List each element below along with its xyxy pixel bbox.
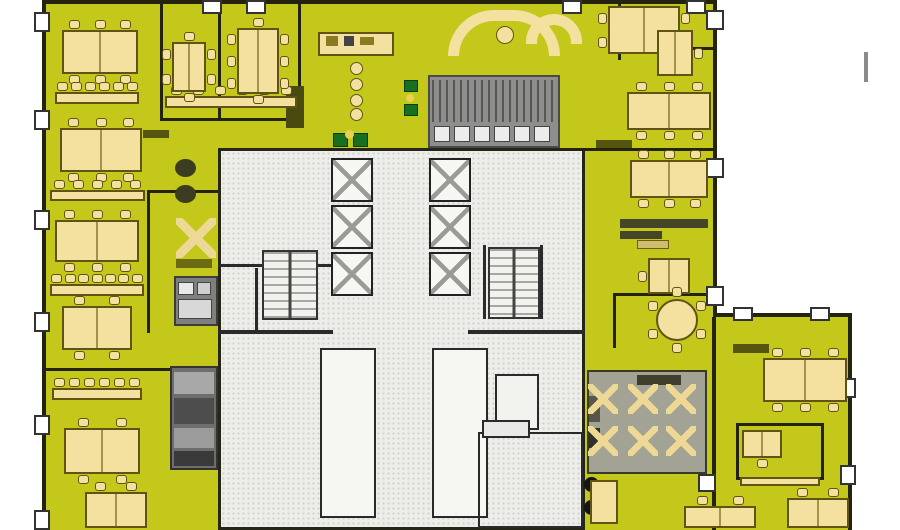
chair <box>697 496 708 505</box>
column <box>698 474 716 492</box>
x-chair-mark <box>176 218 216 258</box>
restroom-fixture <box>494 126 510 142</box>
elevator-shaft <box>331 158 373 202</box>
chair <box>757 459 768 468</box>
chair <box>78 418 89 427</box>
chair <box>113 82 124 91</box>
chair <box>598 13 607 24</box>
chair <box>638 199 649 208</box>
chair <box>96 118 107 127</box>
desk-cluster <box>55 220 139 262</box>
desk-cluster <box>62 30 138 74</box>
desk-cluster <box>172 42 206 92</box>
stairwell <box>262 250 318 320</box>
chair <box>772 403 783 412</box>
kitchen-fixture <box>178 299 212 319</box>
chair <box>74 351 85 360</box>
service-fixture <box>174 451 214 466</box>
chair <box>215 86 226 95</box>
desk-cluster <box>60 128 142 172</box>
chair <box>111 180 122 189</box>
desk-surface <box>55 220 139 262</box>
desk-surface <box>630 160 708 198</box>
chair <box>54 378 65 387</box>
chair <box>118 274 129 283</box>
chair <box>109 351 120 360</box>
desk-surface <box>763 358 847 402</box>
desk-surface <box>172 42 206 92</box>
chair <box>105 274 116 283</box>
chair <box>690 199 701 208</box>
armchair <box>175 185 196 203</box>
chair <box>280 56 289 67</box>
desk-surface <box>787 498 849 528</box>
counter-item <box>326 36 338 46</box>
desk-cluster <box>763 358 847 402</box>
restroom-partitions <box>432 80 556 122</box>
floor-plan <box>0 0 900 530</box>
chair <box>116 418 127 427</box>
desk-surface <box>627 92 711 130</box>
column <box>562 0 582 14</box>
desk-cluster <box>237 28 279 94</box>
column <box>34 415 50 435</box>
chair <box>84 378 95 387</box>
chair <box>253 18 264 27</box>
chair <box>207 49 216 60</box>
chair <box>598 37 607 48</box>
desk-rail <box>740 477 820 486</box>
x-chair-mark <box>588 384 618 414</box>
door-marker-green <box>353 133 368 147</box>
counter-item <box>360 37 374 45</box>
label-band <box>596 140 632 148</box>
chair <box>227 78 236 89</box>
wall <box>613 293 616 348</box>
kitchen-fixture <box>197 282 211 295</box>
desk-cluster <box>657 30 693 76</box>
desk-surface <box>62 306 132 350</box>
wall <box>42 368 170 371</box>
column <box>34 110 50 130</box>
kitchen-fixture <box>178 282 194 295</box>
x-chair-mark <box>666 384 696 414</box>
wall <box>712 317 716 530</box>
chair <box>74 296 85 305</box>
desk-surface <box>52 388 142 400</box>
chair <box>116 475 127 484</box>
core-cabinet <box>482 420 530 438</box>
label-band <box>143 130 169 138</box>
desk-surface <box>62 30 138 74</box>
chair <box>123 118 134 127</box>
door-marker-dot <box>345 130 354 139</box>
chair <box>692 131 703 140</box>
column <box>810 307 830 321</box>
column <box>34 312 50 332</box>
wall <box>42 0 717 4</box>
desk-surface <box>742 430 782 458</box>
chair <box>126 482 137 491</box>
desk-cluster <box>50 190 145 201</box>
label-band <box>733 344 769 353</box>
chair <box>120 20 131 29</box>
chair <box>54 180 65 189</box>
bin-dot <box>406 94 414 102</box>
desk-cluster <box>85 492 147 528</box>
printer-table <box>590 480 618 524</box>
chair <box>184 93 195 102</box>
desk-surface <box>237 28 279 94</box>
chair <box>162 49 171 60</box>
elevator-shaft <box>331 205 373 249</box>
wall <box>147 190 150 333</box>
chair <box>800 348 811 357</box>
chair <box>690 150 701 159</box>
chair <box>129 378 140 387</box>
chair <box>69 378 80 387</box>
chair <box>664 82 675 91</box>
core-wall <box>483 245 486 319</box>
recycle-bin <box>404 80 418 92</box>
chair <box>92 274 103 283</box>
chair <box>828 348 839 357</box>
chair <box>636 131 647 140</box>
desk-surface <box>648 258 690 294</box>
x-chair-mark <box>666 426 696 456</box>
service-fixture <box>174 372 214 394</box>
chair <box>68 118 79 127</box>
chair <box>132 274 143 283</box>
wall <box>736 423 824 426</box>
chair <box>828 403 839 412</box>
chair <box>120 263 131 272</box>
chair <box>733 496 744 505</box>
chair <box>120 210 131 219</box>
desk-surface <box>85 492 147 528</box>
column <box>706 158 724 178</box>
desk-cluster <box>62 306 132 350</box>
chair <box>130 180 141 189</box>
restroom-fixture <box>434 126 450 142</box>
restroom-fixture <box>514 126 530 142</box>
chair <box>681 13 690 24</box>
core-wall <box>255 268 258 330</box>
desk-cluster <box>684 506 756 528</box>
chair <box>664 199 675 208</box>
chair <box>638 150 649 159</box>
chair <box>648 329 658 339</box>
desk-cluster <box>55 92 139 104</box>
chair <box>99 82 110 91</box>
core-wall <box>468 330 585 334</box>
chair <box>828 488 839 497</box>
core-room <box>478 432 583 528</box>
core-wall <box>540 245 543 319</box>
chair <box>109 296 120 305</box>
label-band <box>176 259 212 268</box>
counter-item <box>344 36 354 46</box>
column <box>246 0 266 14</box>
desk-cluster <box>648 258 690 294</box>
chair <box>184 32 195 41</box>
chair <box>664 131 675 140</box>
chair <box>162 74 171 85</box>
desk-cluster <box>630 160 708 198</box>
column <box>706 286 724 306</box>
column <box>706 10 724 30</box>
restroom-fixture <box>534 126 550 142</box>
service-fixture <box>174 428 214 448</box>
elevator-shaft <box>429 252 471 296</box>
desk-cluster <box>742 430 782 458</box>
elevator-shaft <box>429 205 471 249</box>
x-chair-mark <box>588 426 618 456</box>
chair <box>253 95 264 104</box>
elevator-shaft <box>429 158 471 202</box>
elevator-shaft <box>331 252 373 296</box>
column <box>34 12 50 32</box>
chair <box>672 343 682 353</box>
column <box>202 0 222 14</box>
chair <box>638 271 647 282</box>
chair <box>772 348 783 357</box>
chair <box>207 74 216 85</box>
desk-surface <box>50 284 144 296</box>
recycle-bin <box>404 104 418 116</box>
armchair <box>175 159 196 177</box>
chair <box>92 263 103 272</box>
wall <box>160 118 301 121</box>
stray-tick <box>864 52 868 82</box>
chair <box>65 274 76 283</box>
chair <box>696 329 706 339</box>
chair <box>127 82 138 91</box>
chair <box>648 301 658 311</box>
desk-surface <box>657 30 693 76</box>
restroom-fixture <box>474 126 490 142</box>
column <box>34 510 50 530</box>
chair <box>672 287 682 297</box>
column <box>34 210 50 230</box>
lockers-row <box>620 219 708 228</box>
chair <box>696 301 706 311</box>
chair <box>227 56 236 67</box>
round-table <box>656 299 698 341</box>
mech-shaft <box>320 348 376 518</box>
column <box>686 0 706 14</box>
chair <box>227 34 236 45</box>
chair <box>636 82 647 91</box>
desk-cluster <box>627 92 711 130</box>
chair <box>114 378 125 387</box>
stool <box>350 78 363 91</box>
wall <box>160 2 163 120</box>
desk-surface <box>60 128 142 172</box>
chair <box>57 82 68 91</box>
chair <box>664 150 675 159</box>
chair <box>99 378 110 387</box>
column <box>840 465 856 485</box>
chair <box>280 34 289 45</box>
chair <box>73 180 84 189</box>
chair <box>71 82 82 91</box>
chair <box>694 48 703 59</box>
desk-surface <box>64 428 140 474</box>
wall <box>736 423 739 480</box>
restroom-fixture <box>454 126 470 142</box>
chair <box>95 482 106 491</box>
stool <box>350 62 363 75</box>
desk-cluster <box>787 498 849 528</box>
desk-cluster <box>52 388 142 400</box>
service-fixture <box>174 398 214 424</box>
stool <box>350 108 363 121</box>
chair <box>797 488 808 497</box>
label-band <box>620 231 662 239</box>
chair <box>78 274 89 283</box>
chair <box>69 20 80 29</box>
desk-surface <box>50 190 145 201</box>
chair <box>800 403 811 412</box>
wall <box>821 423 824 480</box>
chair <box>85 82 96 91</box>
chair <box>64 210 75 219</box>
stool <box>350 94 363 107</box>
column <box>733 307 753 321</box>
wall <box>42 0 46 530</box>
chair <box>92 210 103 219</box>
chair <box>280 78 289 89</box>
chair <box>64 263 75 272</box>
desk-cluster <box>50 284 144 296</box>
desk-cluster <box>64 428 140 474</box>
x-chair-mark <box>628 426 658 456</box>
core-wall <box>218 330 333 334</box>
desk-surface <box>684 506 756 528</box>
side-board <box>637 240 669 249</box>
x-chair-mark <box>628 384 658 414</box>
desk-surface <box>55 92 139 104</box>
chair <box>692 82 703 91</box>
stairwell <box>488 247 540 319</box>
chair <box>95 20 106 29</box>
chair <box>78 475 89 484</box>
chair <box>92 180 103 189</box>
chair <box>51 274 62 283</box>
